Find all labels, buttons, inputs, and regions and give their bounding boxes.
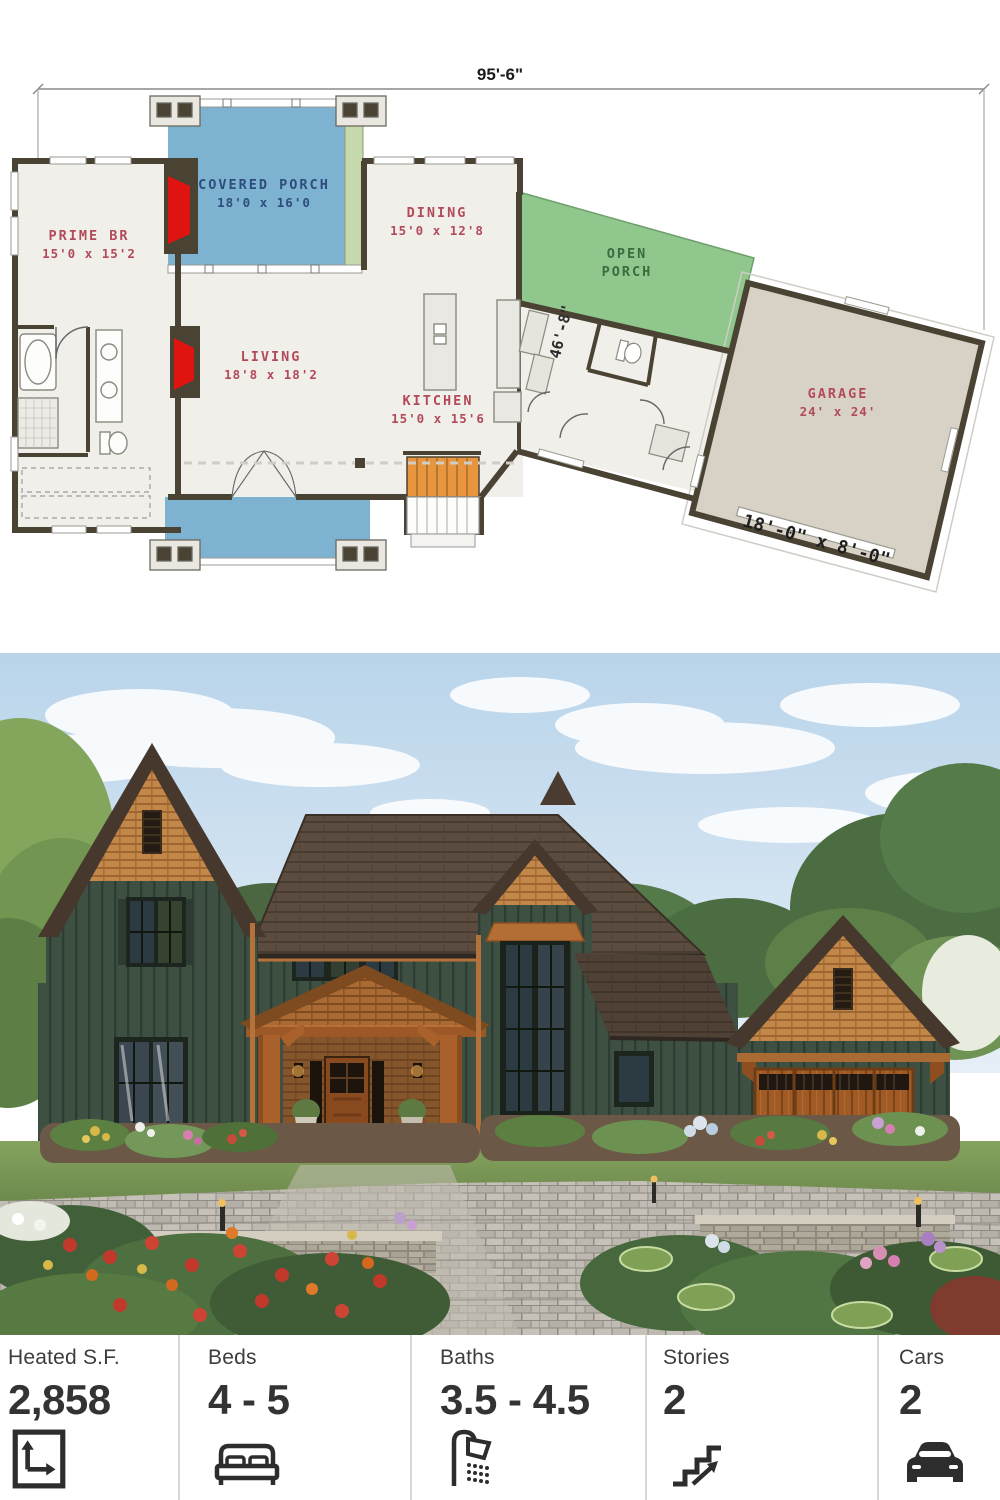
gable-vent [143, 811, 161, 853]
stat-label: Stories [663, 1346, 877, 1370]
open-porch-label: OPEN [607, 246, 648, 262]
copper-awning [486, 923, 584, 941]
svg-text:24' x 24': 24' x 24' [800, 404, 877, 419]
page: { "plan": { "overall_width": "95'-6\"", … [0, 0, 1000, 1500]
garage-label: GARAGE [808, 386, 869, 402]
connector-window [619, 1056, 649, 1102]
house-photo-section [0, 653, 1000, 1335]
bed-icon [210, 1430, 284, 1490]
covered-porch-label: COVERED PORCH [198, 177, 330, 193]
svg-text:18'0 x 16'0: 18'0 x 16'0 [217, 195, 311, 210]
svg-text:15'0 x 15'6: 15'0 x 15'6 [391, 411, 485, 426]
stat-value: 2,858 [8, 1376, 178, 1424]
stairs [407, 457, 479, 547]
stat-label: Cars [899, 1346, 1000, 1370]
stat-baths: Baths 3.5 - 4.5 [410, 1335, 645, 1500]
car-icon [901, 1438, 969, 1490]
svg-text:15'0 x 12'8: 15'0 x 12'8 [390, 223, 484, 238]
svg-text:PORCH: PORCH [602, 264, 653, 280]
stat-label: Beds [208, 1346, 410, 1370]
floor-area-icon [10, 1428, 68, 1490]
stat-value: 2 [663, 1376, 877, 1424]
stat-value: 2 [899, 1376, 1000, 1424]
svg-text:15'0 x 15'2: 15'0 x 15'2 [42, 246, 136, 261]
stat-label: Baths [440, 1346, 645, 1370]
floor-plan: 95'-6" [0, 0, 1000, 653]
downspout-left [250, 923, 255, 1143]
stat-stories: Stories 2 [645, 1335, 877, 1500]
stat-beds: Beds 4 - 5 [178, 1335, 410, 1500]
living-label: LIVING [241, 349, 302, 365]
porch-green-strip [345, 106, 363, 268]
stat-heated-sf: Heated S.F. 2,858 [0, 1335, 178, 1500]
garage-header-beam [737, 1053, 950, 1062]
shower-icon [442, 1424, 502, 1490]
downspout-right [476, 935, 481, 1145]
house-rendering [0, 653, 1000, 1335]
floor-plan-section: 95'-6" [0, 0, 1000, 653]
prime-br-label: PRIME BR [48, 228, 129, 244]
shower-drops [467, 1463, 489, 1484]
overall-width-label: 95'-6" [477, 65, 523, 84]
dining-label: DINING [407, 205, 468, 221]
stat-value: 4 - 5 [208, 1376, 410, 1424]
column [355, 458, 365, 468]
stat-label: Heated S.F. [8, 1346, 178, 1370]
stat-value: 3.5 - 4.5 [440, 1376, 645, 1424]
stats-bar: Heated S.F. 2,858 Beds 4 - 5 Baths 3.5 -… [0, 1335, 1000, 1500]
stairs-icon [665, 1430, 733, 1490]
kitchen-label: KITCHEN [403, 393, 474, 409]
svg-text:18'8 x 18'2: 18'8 x 18'2 [224, 367, 318, 382]
stat-cars: Cars 2 [877, 1335, 1000, 1500]
